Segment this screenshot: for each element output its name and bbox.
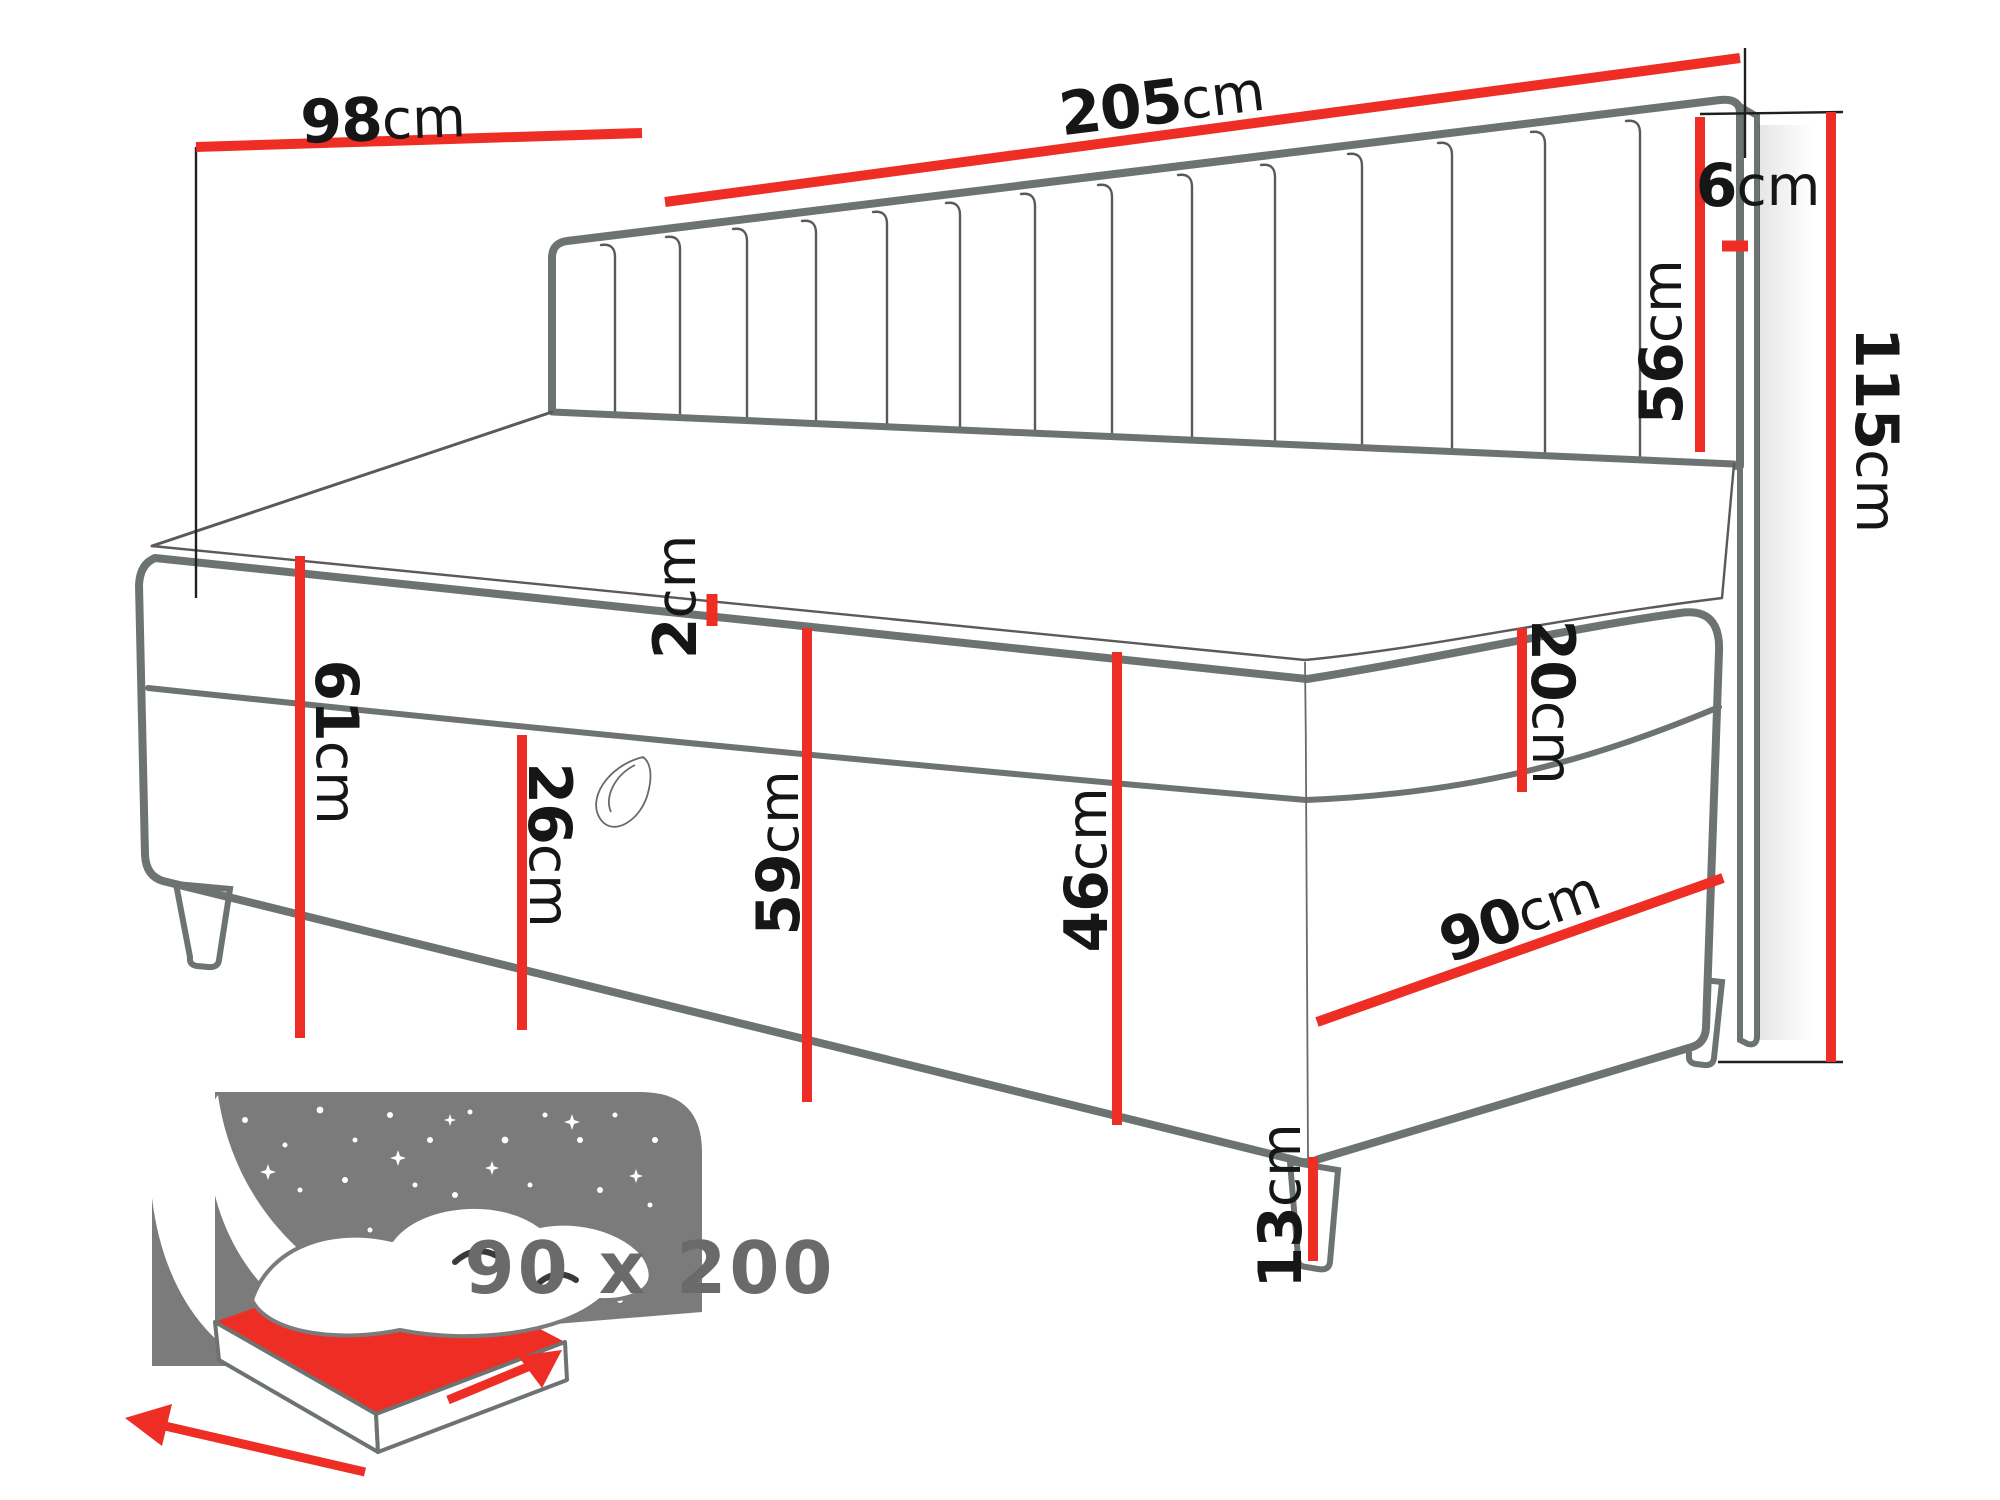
dim-label-61: 61cm bbox=[301, 659, 371, 824]
dim-label-59: 59cm bbox=[744, 770, 814, 935]
dim-label-56: 56cm bbox=[1627, 259, 1697, 424]
headboard-shadow bbox=[1759, 125, 1813, 1040]
size-icon: 90 x 200 bbox=[125, 1092, 836, 1472]
dim-label-6: 6cm bbox=[1696, 151, 1821, 221]
dim-label-2: 2cm bbox=[641, 535, 711, 660]
dim-label-115: 115cm bbox=[1841, 327, 1911, 533]
dim-label-13: 13cm bbox=[1246, 1123, 1316, 1288]
bed-dimension-diagram: 98cm 205cm 6cm 56cm 115cm 2cm 61cm 26cm … bbox=[0, 0, 2000, 1500]
size-badge: 90 x 200 bbox=[464, 1226, 835, 1310]
bed-body bbox=[139, 412, 1734, 1162]
dim-label-205: 205cm bbox=[1055, 56, 1268, 151]
dim-label-20: 20cm bbox=[1517, 619, 1587, 784]
headboard-front bbox=[552, 100, 1740, 466]
dim-label-46: 46cm bbox=[1052, 787, 1122, 952]
dim-label-98: 98cm bbox=[299, 82, 467, 158]
dim-label-26: 26cm bbox=[514, 762, 584, 927]
bed-base-outline bbox=[139, 558, 1719, 1162]
